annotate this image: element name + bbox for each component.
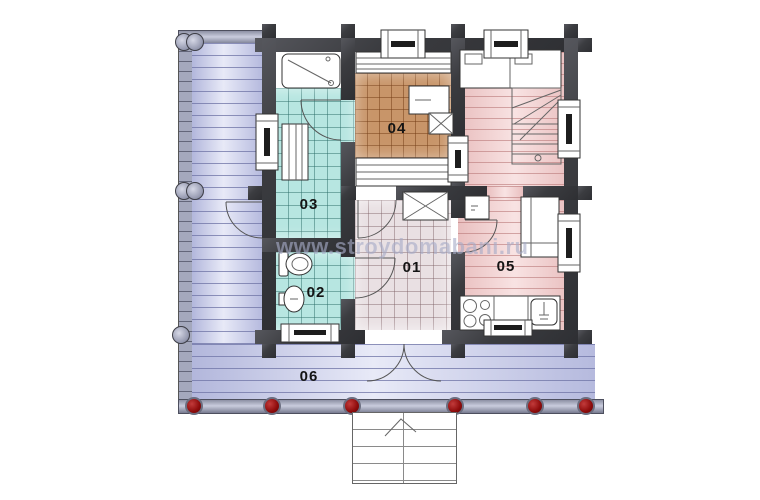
door-arc: [358, 200, 396, 238]
staircase: [512, 88, 561, 164]
room-04-label: 04: [377, 120, 417, 137]
appliance-icon: [465, 196, 489, 219]
floor-plan-canvas: 01 02 03 04 05 06 www.stroydomabani.ru: [0, 0, 760, 500]
window: [484, 30, 528, 58]
room-02-label: 02: [296, 284, 336, 301]
sauna-stove-icon: [429, 113, 453, 134]
window: [558, 214, 580, 272]
sauna-table: [409, 86, 449, 114]
window: [281, 324, 339, 342]
door-arc: [355, 258, 395, 298]
framed-opening: [448, 136, 468, 182]
door-arc: [226, 202, 262, 238]
room-01-label: 01: [392, 259, 432, 276]
window: [558, 100, 580, 158]
window: [381, 30, 425, 58]
kitchen-sink-icon: [531, 299, 557, 325]
bench: [282, 124, 308, 180]
entry-double-door: [367, 344, 441, 381]
room-06-label: 06: [289, 368, 329, 385]
wardrobe: [403, 192, 448, 220]
sauna-bench: [356, 158, 451, 186]
window: [484, 320, 532, 336]
entry-direction-arrow-icon: [385, 419, 416, 436]
shower-tray: [282, 54, 340, 88]
room-03-label: 03: [289, 196, 329, 213]
room-05-label: 05: [486, 258, 526, 275]
window: [256, 114, 278, 170]
watermark: www.stroydomabani.ru: [276, 234, 528, 260]
